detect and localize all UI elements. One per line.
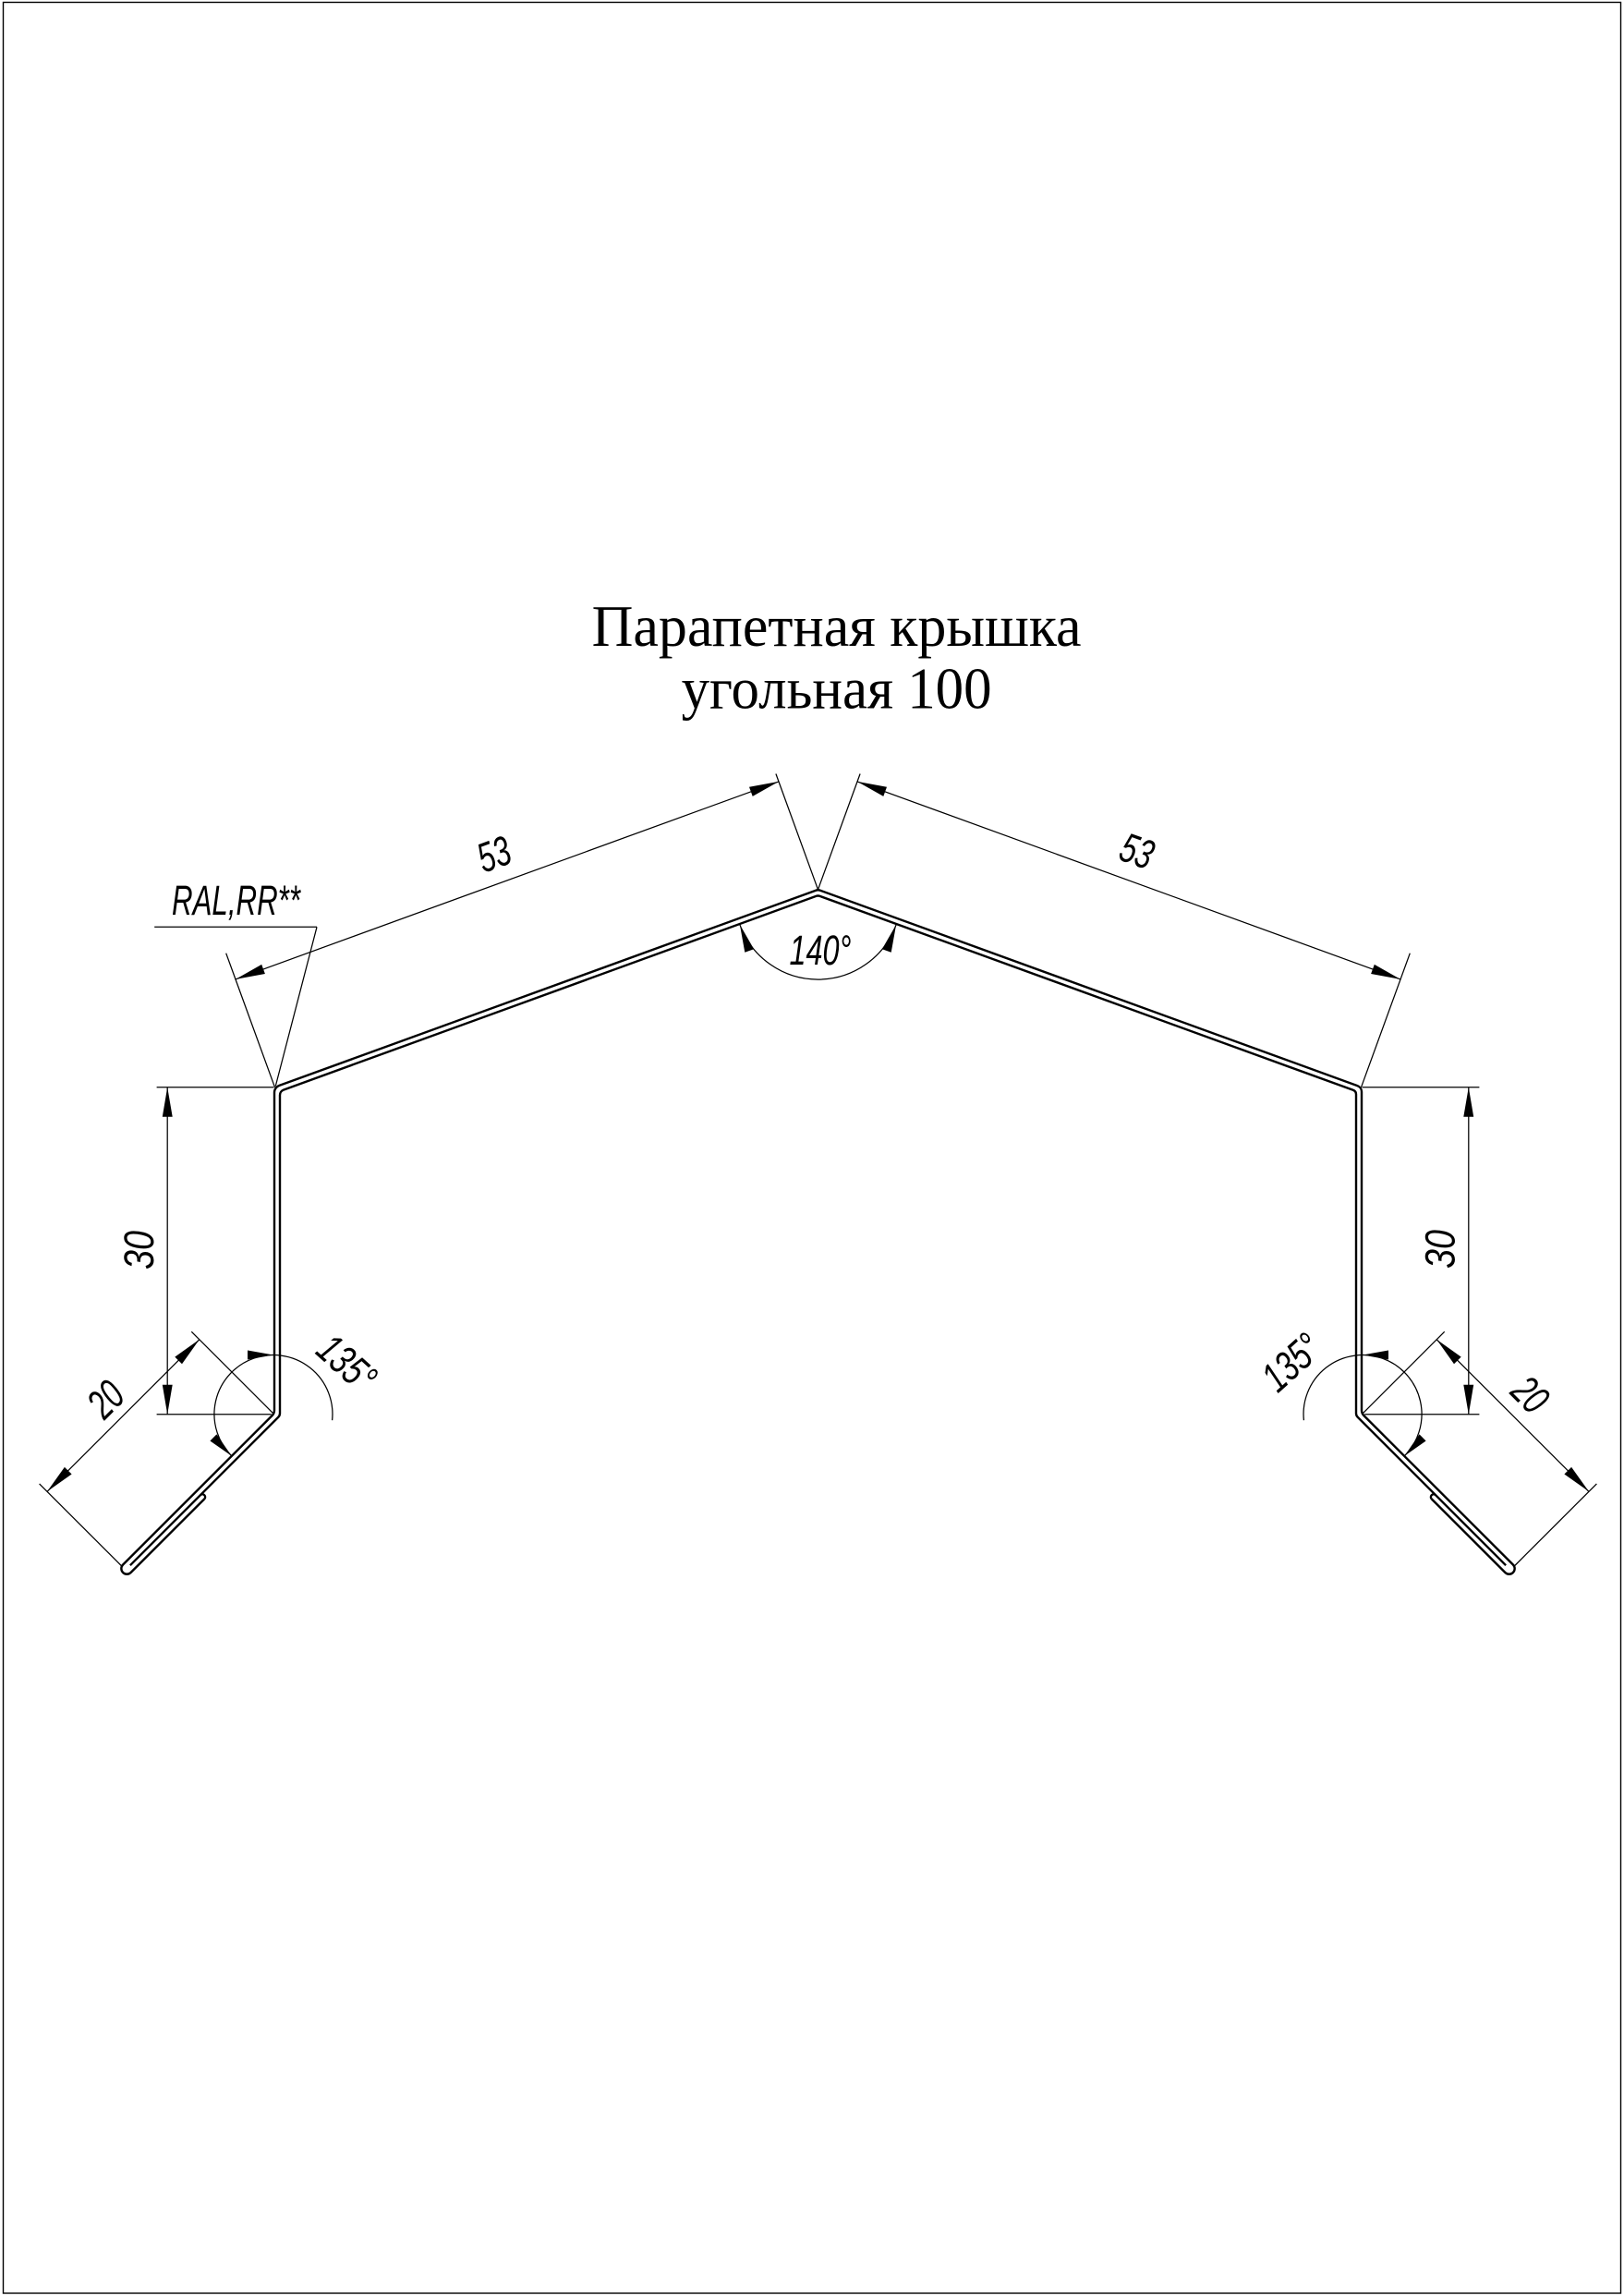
svg-text:угольная 100: угольная 100 — [682, 656, 992, 722]
svg-text:30: 30 — [115, 1231, 163, 1269]
svg-text:Парапетная крышка: Парапетная крышка — [592, 593, 1082, 659]
svg-text:RAL,RR**: RAL,RR** — [172, 877, 301, 924]
svg-text:140°: 140° — [790, 927, 852, 974]
svg-text:30: 30 — [1417, 1230, 1464, 1269]
